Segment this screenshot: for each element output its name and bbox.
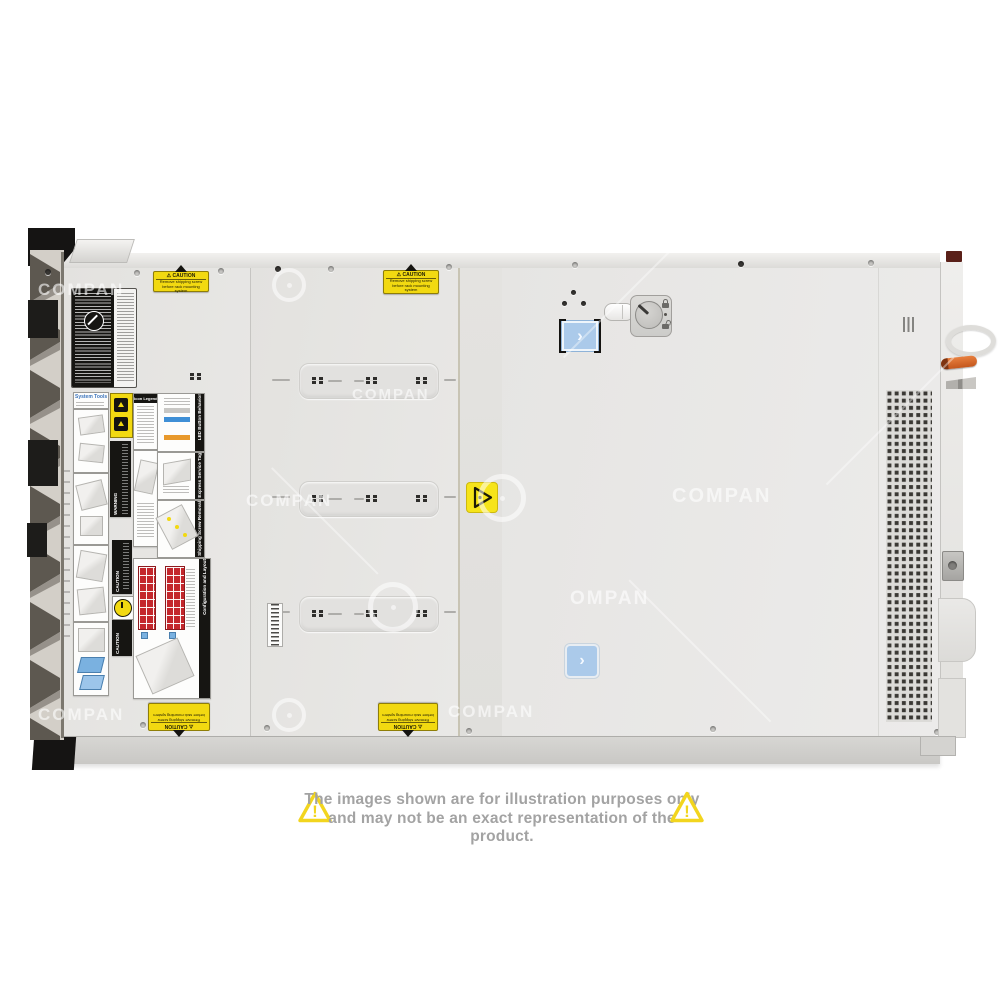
rear-express-service-tag-label: Rear Express Service Tag [157,452,205,500]
drive-handle [28,300,58,338]
watermark-logo-icon [478,474,526,522]
screw [264,725,270,731]
vent-dash [272,379,290,381]
service-diagram-label [133,450,158,547]
warning-triangle-icon: ! [669,790,705,824]
screw [45,269,51,275]
vent-dash [444,379,456,381]
watermark-logo-icon [272,268,306,302]
screw [710,726,716,732]
chevron-right-icon: › [579,652,584,670]
service-diagram-label [73,409,109,473]
thumbscrew [942,551,964,581]
vent-dash [444,496,456,498]
warning-triangle-icon: ⚠ [189,723,193,729]
caution-sticker: ⚠ CAUTION Remove shipping screw before r… [153,271,209,292]
cover-seam [878,268,879,736]
system-tools-label: System Tools [73,392,109,409]
watermark-text-partial: OMPAN [570,588,649,610]
chassis-foot [920,736,956,756]
locked-icon [662,303,669,308]
watermark-text: COMPAN [672,485,771,508]
watermark-text: COMPAN [246,491,332,511]
rear-connector [946,251,962,262]
cover-keylock [630,295,672,337]
regulatory-label [71,288,137,388]
rail-bracket [69,239,135,263]
caution-sticker-rotated: ⚠ CAUTION Remove shipping screw before r… [148,703,210,731]
rear-tab [938,598,976,662]
watermark-logo-icon [368,582,418,632]
vent-pair [190,373,201,380]
screw [571,290,576,295]
mini-vent [903,317,915,332]
rack-ear-bottom-left [32,737,76,770]
chassis-bottom-edge [62,736,940,764]
caution-sticker: ⚠ CAUTION Remove shipping screw before r… [383,270,439,294]
watermark-text: COMPAN [448,702,534,722]
led-button-behavior-label: LED Button Behavior [157,393,205,452]
edge-print-icons [64,470,70,640]
product-photo: ⚠ CAUTION Remove shipping screw before r… [0,0,1000,1000]
disclaimer-line-1: The images shown are for illustration pu… [300,791,704,810]
disclaimer-line-2: and may not be an exact representation o… [300,810,704,847]
pinch-warning-sticker [110,393,133,438]
watermark-text: COMPAN [38,705,124,725]
release-button: › [565,644,599,678]
service-diagram-label [73,473,109,545]
unlocked-icon [662,324,669,329]
screw [868,260,874,266]
timer-sticker [112,596,134,620]
watermark-text: COMPAN [352,386,430,403]
screw [218,268,224,274]
watermark-text: COMPAN [38,280,124,300]
screw [140,722,146,728]
certification-logo-icon [84,311,104,331]
shipping-screw-removal-label: Shipping Screw Removal [157,500,205,558]
screw [328,266,334,272]
warning-triangle-icon: ⚠ [418,723,422,729]
handle-ring [946,325,996,357]
rear-vent-grid [886,390,932,722]
chassis-top-edge [62,253,940,269]
svg-text:!: ! [684,802,690,821]
icon-legend-label: Icon Legend [133,393,158,450]
caution-label: CAUTION [112,540,132,594]
mini-barcode-label [267,603,283,647]
caution-label: CAUTION [112,620,132,656]
watermark-logo-icon [272,698,306,732]
lock-indicator-dot [664,313,667,316]
screw [572,262,578,268]
service-diagram-label [73,622,109,696]
screw [446,264,452,270]
drive-handle [27,523,47,557]
drive-handle [28,440,58,486]
screw [134,270,140,276]
configuration-and-layout-label: Configuration and Layout [133,558,211,699]
vent-dash [444,611,456,613]
screw [738,261,744,267]
caution-sticker-rotated: ⚠ CAUTION Remove shipping screw before r… [378,703,438,731]
disclaimer-text: The images shown are for illustration pu… [300,791,704,847]
service-diagram-label [73,545,109,622]
screw [562,301,567,306]
rear-corner [938,678,966,738]
screw [466,728,472,734]
warning-label: WARNING [110,441,131,517]
screw [581,301,586,306]
